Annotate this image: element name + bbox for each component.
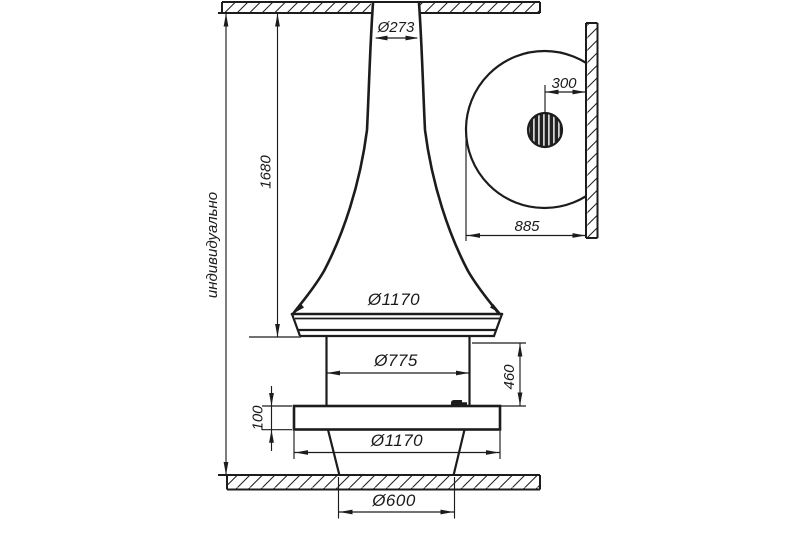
dim-label-edge-to-wall: 885 [514,218,540,235]
floor-hatch-fill [227,476,540,490]
arrowhead-right [406,36,419,41]
hood-left-curve [293,3,373,314]
dim-label-hood-rim-dia: Ø1170 [367,290,420,309]
ceiling-hatch-left [222,3,371,14]
dim-label-ceiling-distance: индивидуально [204,192,221,298]
dim-label-body-dia: Ø775 [373,351,418,370]
ceiling-hatch-right [420,3,540,14]
arrowhead-right [441,510,454,515]
wall-hatch-fill [586,23,598,238]
hood-rim-flange [292,314,502,336]
fireplace-drawing: Ø273 индивидуально 1680 Ø1170 Ø775 460 [0,0,800,533]
arrowhead-top [275,14,280,27]
arrowhead-bottom [518,393,523,406]
dim-label-pipe-to-wall: 300 [551,75,577,92]
dim-plate-diameter: Ø1170 [294,431,500,459]
floor-hatch [218,475,540,490]
top-view [466,23,623,238]
arrowhead-up [269,430,274,443]
dim-label-chimney-dia: Ø273 [377,19,415,36]
dim-body-diameter: Ø775 [327,351,470,375]
firebox-cylinder [327,336,470,406]
dim-label-hood-height: 1680 [258,155,275,189]
arrowhead-right [456,371,469,376]
arrowhead-left [467,233,480,238]
arrowhead-right [486,450,499,455]
arrowhead-left [375,36,388,41]
dim-label-plate-thickness: 100 [250,405,267,431]
dim-ceiling-distance: индивидуально [204,13,228,475]
ceiling-hatch [218,2,540,13]
dim-chimney-diameter: Ø273 [375,19,419,40]
arrowhead-left [295,450,308,455]
arrowhead-top [518,344,523,357]
hood-right-curve [419,3,499,314]
wall-hatch [586,23,598,238]
dim-hood-rim-diameter: Ø1170 [291,290,503,316]
arrowhead-left [340,510,353,515]
dim-label-base-dia: Ø600 [371,491,416,510]
technical-drawing-canvas: Ø273 индивидуально 1680 Ø1170 Ø775 460 [0,0,800,533]
dim-label-body-height: 460 [501,364,518,390]
arrowhead-bottom [275,324,280,337]
arrowhead-right [573,233,586,238]
dim-pipe-to-wall: 300 [545,75,586,112]
arrowhead-top [224,14,229,27]
dim-label-plate-dia: Ø1170 [370,431,423,450]
arrowhead-down [269,393,274,406]
dim-plate-thickness: 100 [250,386,293,451]
flange-end-bevels [292,314,502,336]
dim-body-height: 460 [472,343,526,406]
arrowhead-left [327,371,340,376]
chimney-pipe-section [528,113,562,147]
base-plate [294,406,500,430]
arrowhead-bottom [224,462,229,475]
hood-outline [293,3,499,314]
dim-hood-height: 1680 [249,13,301,337]
dim-edge-to-wall: 885 [466,132,586,241]
